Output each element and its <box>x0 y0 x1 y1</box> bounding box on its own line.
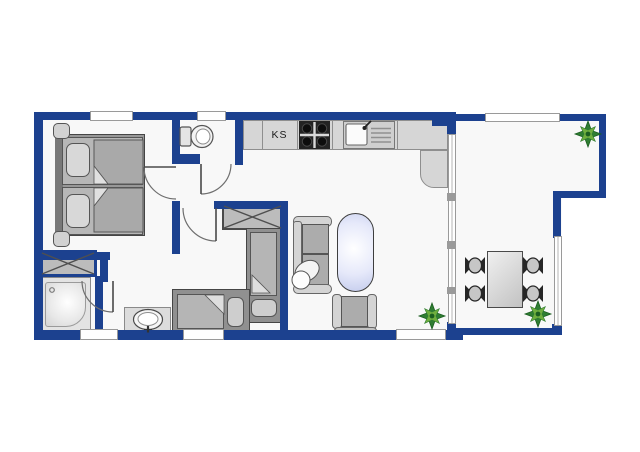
wall-shower-east <box>95 276 103 332</box>
window <box>183 329 224 340</box>
wall-bedroom2-east <box>280 201 288 340</box>
kitchen-counter-side <box>420 150 448 188</box>
window-mullion <box>447 287 456 294</box>
fridge-label: KS <box>262 120 297 150</box>
terrace-window <box>485 113 560 122</box>
terrace-floor-upper <box>455 114 606 198</box>
nightstand <box>53 123 70 139</box>
wall-bedroom2-west <box>172 201 180 254</box>
pillow <box>66 143 90 177</box>
wall-divider-top <box>447 120 456 134</box>
armchair-seat <box>341 296 368 327</box>
single-bed-blanket <box>250 232 277 296</box>
wall-terrace-bottom <box>449 328 562 335</box>
sofa-cushion <box>302 254 329 285</box>
counter-divider <box>297 121 298 149</box>
window <box>396 329 446 340</box>
terrace-glass-divider <box>448 134 456 324</box>
dining-table <box>487 251 523 308</box>
sofa-cushion <box>302 224 329 254</box>
wall-terrace-step <box>558 191 606 198</box>
counter-divider <box>397 121 398 149</box>
pillow <box>227 297 244 327</box>
sofa-back <box>293 221 302 287</box>
terrace-window-right <box>554 236 562 326</box>
armchair-armrest <box>367 294 377 329</box>
pillow <box>66 194 90 228</box>
single-bed-blanket <box>177 294 224 329</box>
kitchen-sink-unit <box>343 121 395 149</box>
window <box>197 111 226 121</box>
wall-left <box>34 112 43 340</box>
wall-terrace-mid <box>553 191 561 238</box>
pillow <box>251 299 277 317</box>
nightstand <box>53 231 70 247</box>
wall-bedroom2-north <box>214 201 288 209</box>
floor-plan: KS <box>0 0 640 452</box>
coffee-table <box>337 213 374 292</box>
window <box>80 329 118 340</box>
sofa-armrest <box>293 284 332 294</box>
window-mullion <box>447 241 456 249</box>
window-mullion <box>447 193 456 201</box>
wall-wc-south <box>172 154 200 164</box>
wall-wc-east <box>235 120 243 165</box>
shower-basin <box>45 282 86 327</box>
wall-bedroom-south <box>34 252 110 260</box>
wall-divider-bottom <box>447 322 456 338</box>
wall-terrace-right-upper <box>599 114 606 198</box>
stove <box>299 121 330 149</box>
counter-divider <box>332 121 333 149</box>
window <box>90 111 133 121</box>
